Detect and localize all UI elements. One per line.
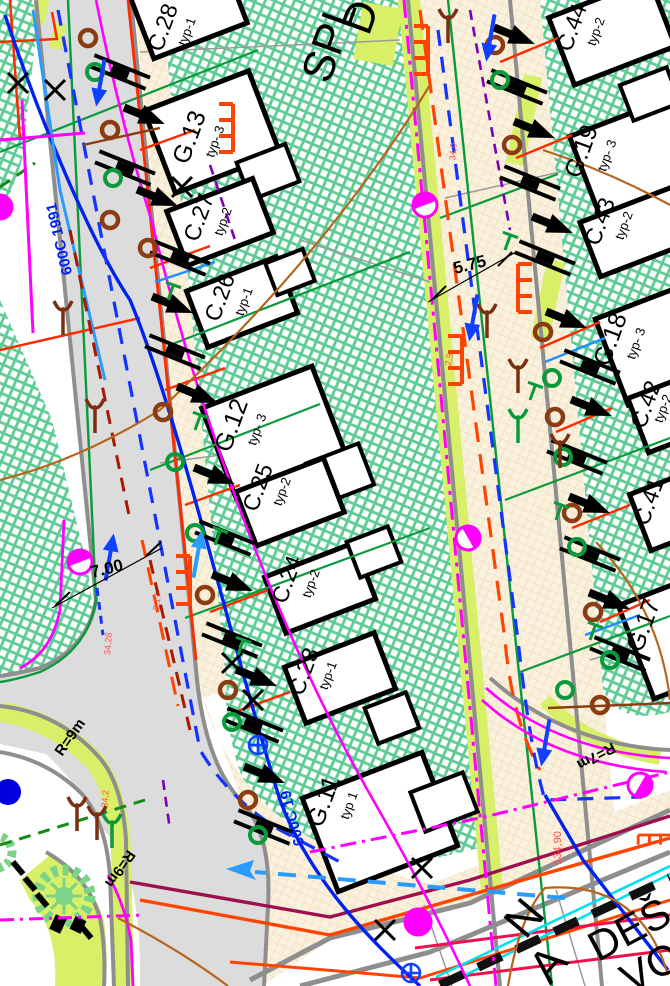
gradient-25: 2,5 (443, 352, 455, 366)
elevation-340: 34,0 (447, 143, 458, 161)
valve-magenta-filled (405, 909, 431, 935)
elevation-317: 3,17 (151, 592, 163, 610)
elevation-13490: 134,90 (552, 831, 564, 865)
elevation-3428: 34,28 (102, 632, 114, 655)
elevation-342: 34,2 (99, 790, 110, 808)
site-plan-canvas: C.28 typ-1 G.13 typ- 3 C.27 typ-2 C.26 t… (0, 0, 670, 986)
